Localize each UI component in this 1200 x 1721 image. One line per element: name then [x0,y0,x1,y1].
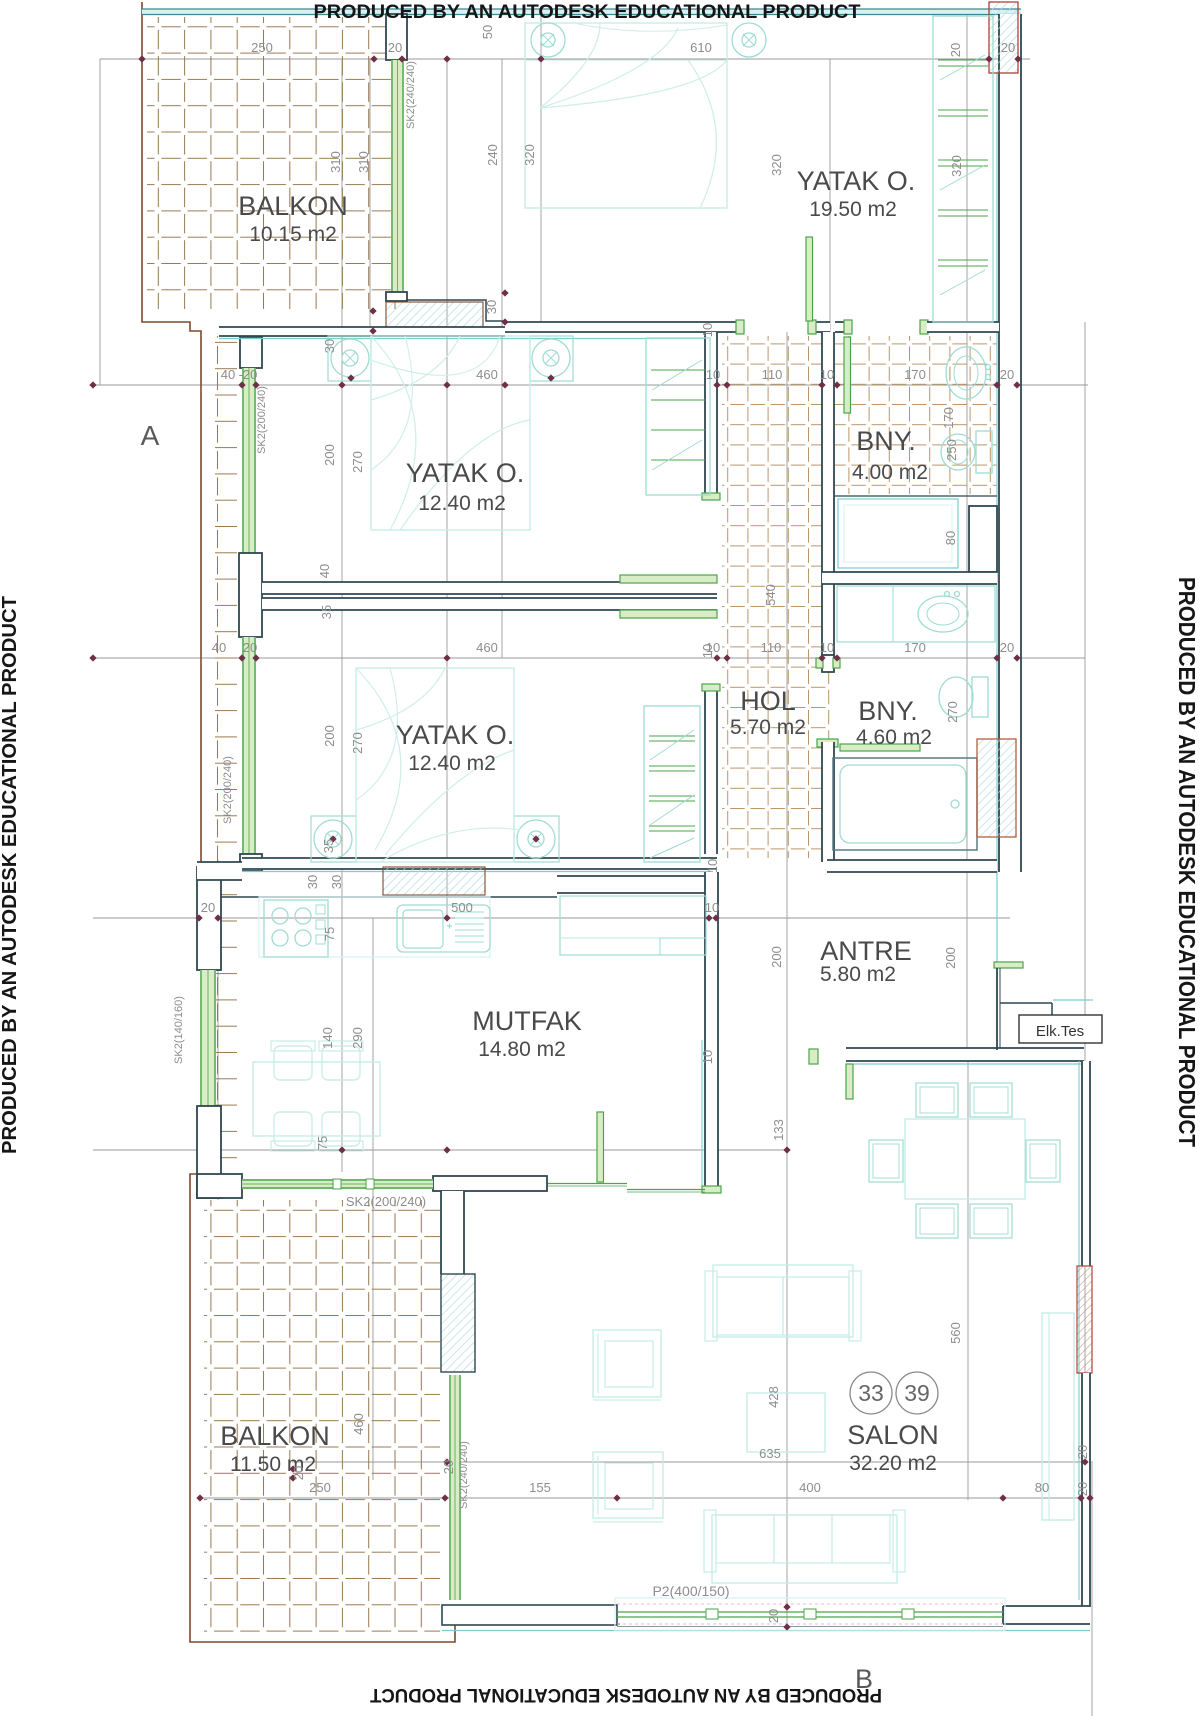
svg-text:PRODUCED BY AN AUTODESK EDUCAT: PRODUCED BY AN AUTODESK EDUCATIONAL PROD… [370,1684,882,1706]
svg-text:5.70 m2: 5.70 m2 [730,716,806,739]
svg-text:270: 270 [350,451,365,473]
svg-text:YATAK O.: YATAK O. [396,720,515,750]
svg-text:PRODUCED BY AN AUTODESK EDUCAT: PRODUCED BY AN AUTODESK EDUCATIONAL PROD… [0,596,21,1154]
svg-text:20: 20 [201,900,215,915]
svg-text:200: 200 [943,947,958,969]
svg-text:35: 35 [321,839,336,853]
svg-text:200: 200 [322,444,337,466]
svg-text:30: 30 [329,875,344,889]
svg-text:BNY.: BNY. [858,696,918,726]
svg-text:14.80 m2: 14.80 m2 [478,1038,566,1061]
svg-text:40: 40 [212,640,226,655]
svg-text:40: 40 [317,564,332,578]
svg-text:BALKON: BALKON [238,191,348,221]
svg-text:BALKON: BALKON [220,1421,330,1451]
svg-text:20: 20 [1075,1445,1090,1459]
svg-text:10: 10 [700,1050,715,1064]
svg-text:40: 40 [221,367,235,382]
svg-text:20: 20 [1000,367,1014,382]
svg-text:39: 39 [904,1380,930,1406]
svg-text:10: 10 [706,367,720,382]
svg-text:PRODUCED BY AN AUTODESK EDUCAT: PRODUCED BY AN AUTODESK EDUCATIONAL PROD… [1174,577,1200,1147]
svg-text:500: 500 [451,900,473,915]
svg-text:19.50 m2: 19.50 m2 [809,198,897,221]
svg-text:250: 250 [309,1480,331,1495]
svg-text:32.20 m2: 32.20 m2 [849,1452,937,1475]
svg-text:320: 320 [949,155,964,177]
svg-text:HOL: HOL [740,686,796,716]
svg-text:155: 155 [529,1480,551,1495]
svg-text:310: 310 [356,151,371,173]
svg-text:75: 75 [315,1136,330,1150]
svg-text:4.00 m2: 4.00 m2 [852,461,928,484]
svg-text:PRODUCED BY AN AUTODESK EDUCAT: PRODUCED BY AN AUTODESK EDUCATIONAL PROD… [314,1,861,23]
svg-text:BNY.: BNY. [856,426,916,456]
svg-text:MUTFAK: MUTFAK [472,1006,582,1036]
svg-text:12.40 m2: 12.40 m2 [408,752,496,775]
svg-text:20: 20 [1075,1482,1090,1496]
svg-text:270: 270 [945,701,960,723]
svg-text:240: 240 [485,144,500,166]
svg-text:10: 10 [820,367,834,382]
svg-text:635: 635 [759,1446,781,1461]
svg-text:20: 20 [1001,40,1015,55]
svg-text:320: 320 [522,144,537,166]
svg-text:50: 50 [480,25,495,39]
svg-text:80: 80 [1035,1480,1049,1495]
svg-text:560: 560 [948,1322,963,1344]
svg-text:20: 20 [291,1466,306,1480]
svg-text:170: 170 [904,367,926,382]
svg-text:10: 10 [820,640,834,655]
svg-text:250: 250 [944,439,959,461]
svg-text:20: 20 [766,1609,781,1623]
svg-text:SK2(140/160): SK2(140/160) [173,996,185,1064]
svg-text:30: 30 [305,875,320,889]
svg-text:SALON: SALON [847,1420,939,1450]
svg-text:400: 400 [799,1480,821,1495]
svg-text:SK2(240/240): SK2(240/240) [405,61,417,129]
svg-text:P2(400/150): P2(400/150) [652,1583,729,1599]
svg-text:20: 20 [441,1460,456,1474]
svg-text:460: 460 [476,640,498,655]
svg-text:SK2(200/240): SK2(200/240) [346,1194,426,1209]
svg-text:20: 20 [948,43,963,57]
svg-text:250: 250 [251,40,273,55]
svg-text:290: 290 [350,1027,365,1049]
svg-text:4.60 m2: 4.60 m2 [856,726,932,749]
svg-text:12.40 m2: 12.40 m2 [418,492,506,515]
svg-text:YATAK O.: YATAK O. [406,458,525,488]
svg-text:30: 30 [322,339,337,353]
svg-text:10.15 m2: 10.15 m2 [249,223,337,246]
svg-text:5.80 m2: 5.80 m2 [820,963,896,986]
svg-text:A: A [141,420,160,451]
svg-text:10: 10 [700,644,715,658]
svg-text:75: 75 [322,927,337,941]
svg-text:133: 133 [771,1119,786,1141]
svg-text:110: 110 [761,640,782,655]
svg-text:20: 20 [243,640,257,655]
svg-text:460: 460 [351,1413,366,1435]
svg-text:540: 540 [763,584,778,606]
svg-text:320: 320 [769,154,784,176]
svg-text:Elk.Tes: Elk.Tes [1036,1023,1084,1040]
svg-text:SK2(200/240): SK2(200/240) [222,756,234,824]
svg-text:10: 10 [705,859,720,873]
svg-text:110: 110 [762,367,783,382]
svg-text:SK2(240/240): SK2(240/240) [458,1441,470,1509]
svg-text:140: 140 [320,1027,335,1049]
svg-text:33: 33 [858,1380,884,1406]
svg-text:270: 270 [350,732,365,754]
svg-text:460: 460 [476,367,498,382]
svg-text:20: 20 [1000,640,1014,655]
svg-text:200: 200 [322,725,337,747]
svg-text:200: 200 [769,946,784,968]
svg-text:170: 170 [941,407,956,429]
svg-text:170: 170 [904,640,926,655]
svg-text:10: 10 [705,900,719,915]
svg-text:20: 20 [388,40,402,55]
svg-text:80: 80 [943,531,958,545]
svg-text:310: 310 [328,151,343,173]
svg-text:10: 10 [700,323,715,337]
svg-text:ANTRE: ANTRE [820,936,912,966]
svg-text:-20: -20 [239,367,258,382]
svg-text:428: 428 [766,1386,781,1408]
svg-text:YATAK O.: YATAK O. [797,166,916,196]
svg-text:610: 610 [690,40,712,55]
svg-text:30: 30 [484,300,499,314]
svg-text:SK2(200/240): SK2(200/240) [256,386,268,454]
svg-text:35: 35 [319,605,334,619]
